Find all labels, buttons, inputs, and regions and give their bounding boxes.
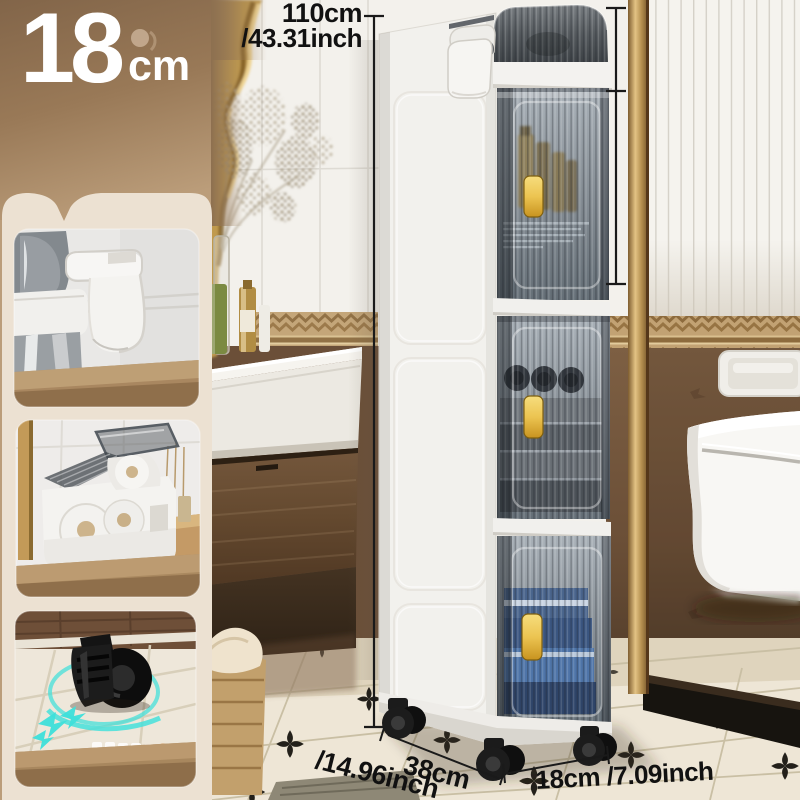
svg-text:18: 18 [20, 0, 123, 103]
svg-text:/43.31inch: /43.31inch [241, 23, 362, 53]
svg-text:cm: cm [128, 42, 190, 90]
